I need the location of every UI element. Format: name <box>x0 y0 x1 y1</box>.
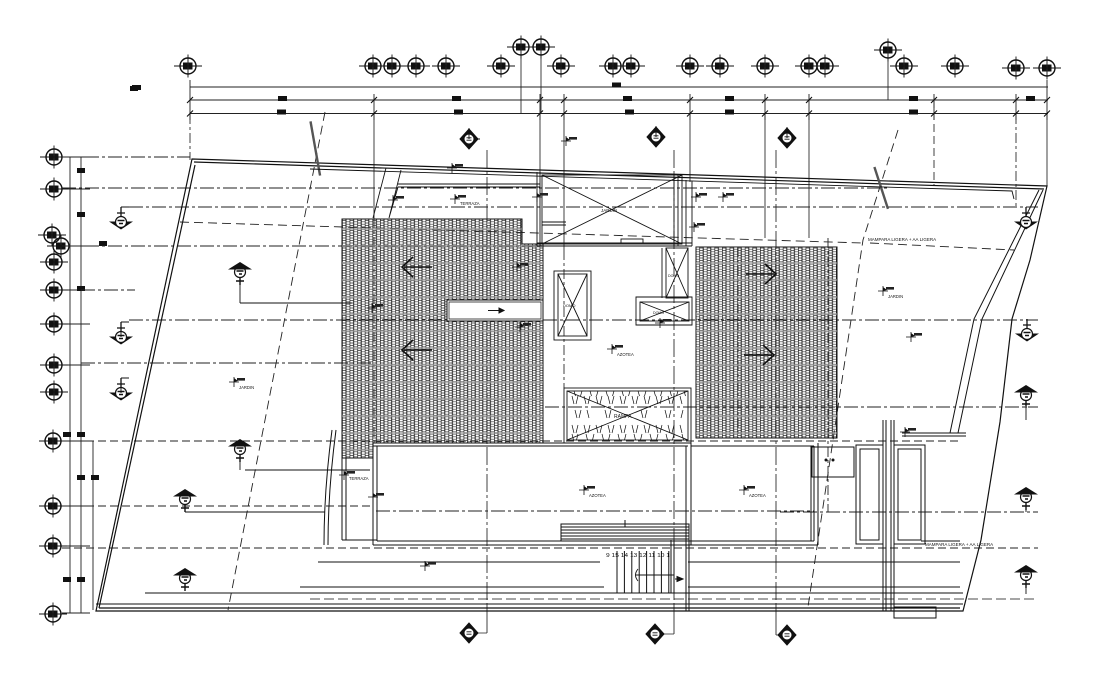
svg-text:RAMPA: RAMPA <box>614 414 632 420</box>
svg-text:AZOTEA: AZOTEA <box>617 352 634 357</box>
svg-text:DOMO: DOMO <box>563 303 575 308</box>
svg-text:AZOTEA: AZOTEA <box>749 493 766 498</box>
svg-text:JARDIN: JARDIN <box>601 208 617 213</box>
svg-text:JARDIN: JARDIN <box>888 294 903 299</box>
svg-text:TERRAZA: TERRAZA <box>349 476 369 481</box>
svg-text:DOMO: DOMO <box>668 274 679 278</box>
svg-text:JARDIN: JARDIN <box>239 385 254 390</box>
svg-text:AZOTEA: AZOTEA <box>589 493 606 498</box>
svg-text:DOMO: DOMO <box>653 311 664 315</box>
svg-text:9 15 14 13 12 11 10 1: 9 15 14 13 12 11 10 1 <box>606 553 670 559</box>
svg-text:MAMPARA LIGERA + AA LIGERA: MAMPARA LIGERA + AA LIGERA <box>925 542 993 547</box>
svg-text:TERRAZA: TERRAZA <box>460 201 480 206</box>
svg-text:MAMPARA LIGERA + AA LIGERA: MAMPARA LIGERA + AA LIGERA <box>868 237 936 242</box>
